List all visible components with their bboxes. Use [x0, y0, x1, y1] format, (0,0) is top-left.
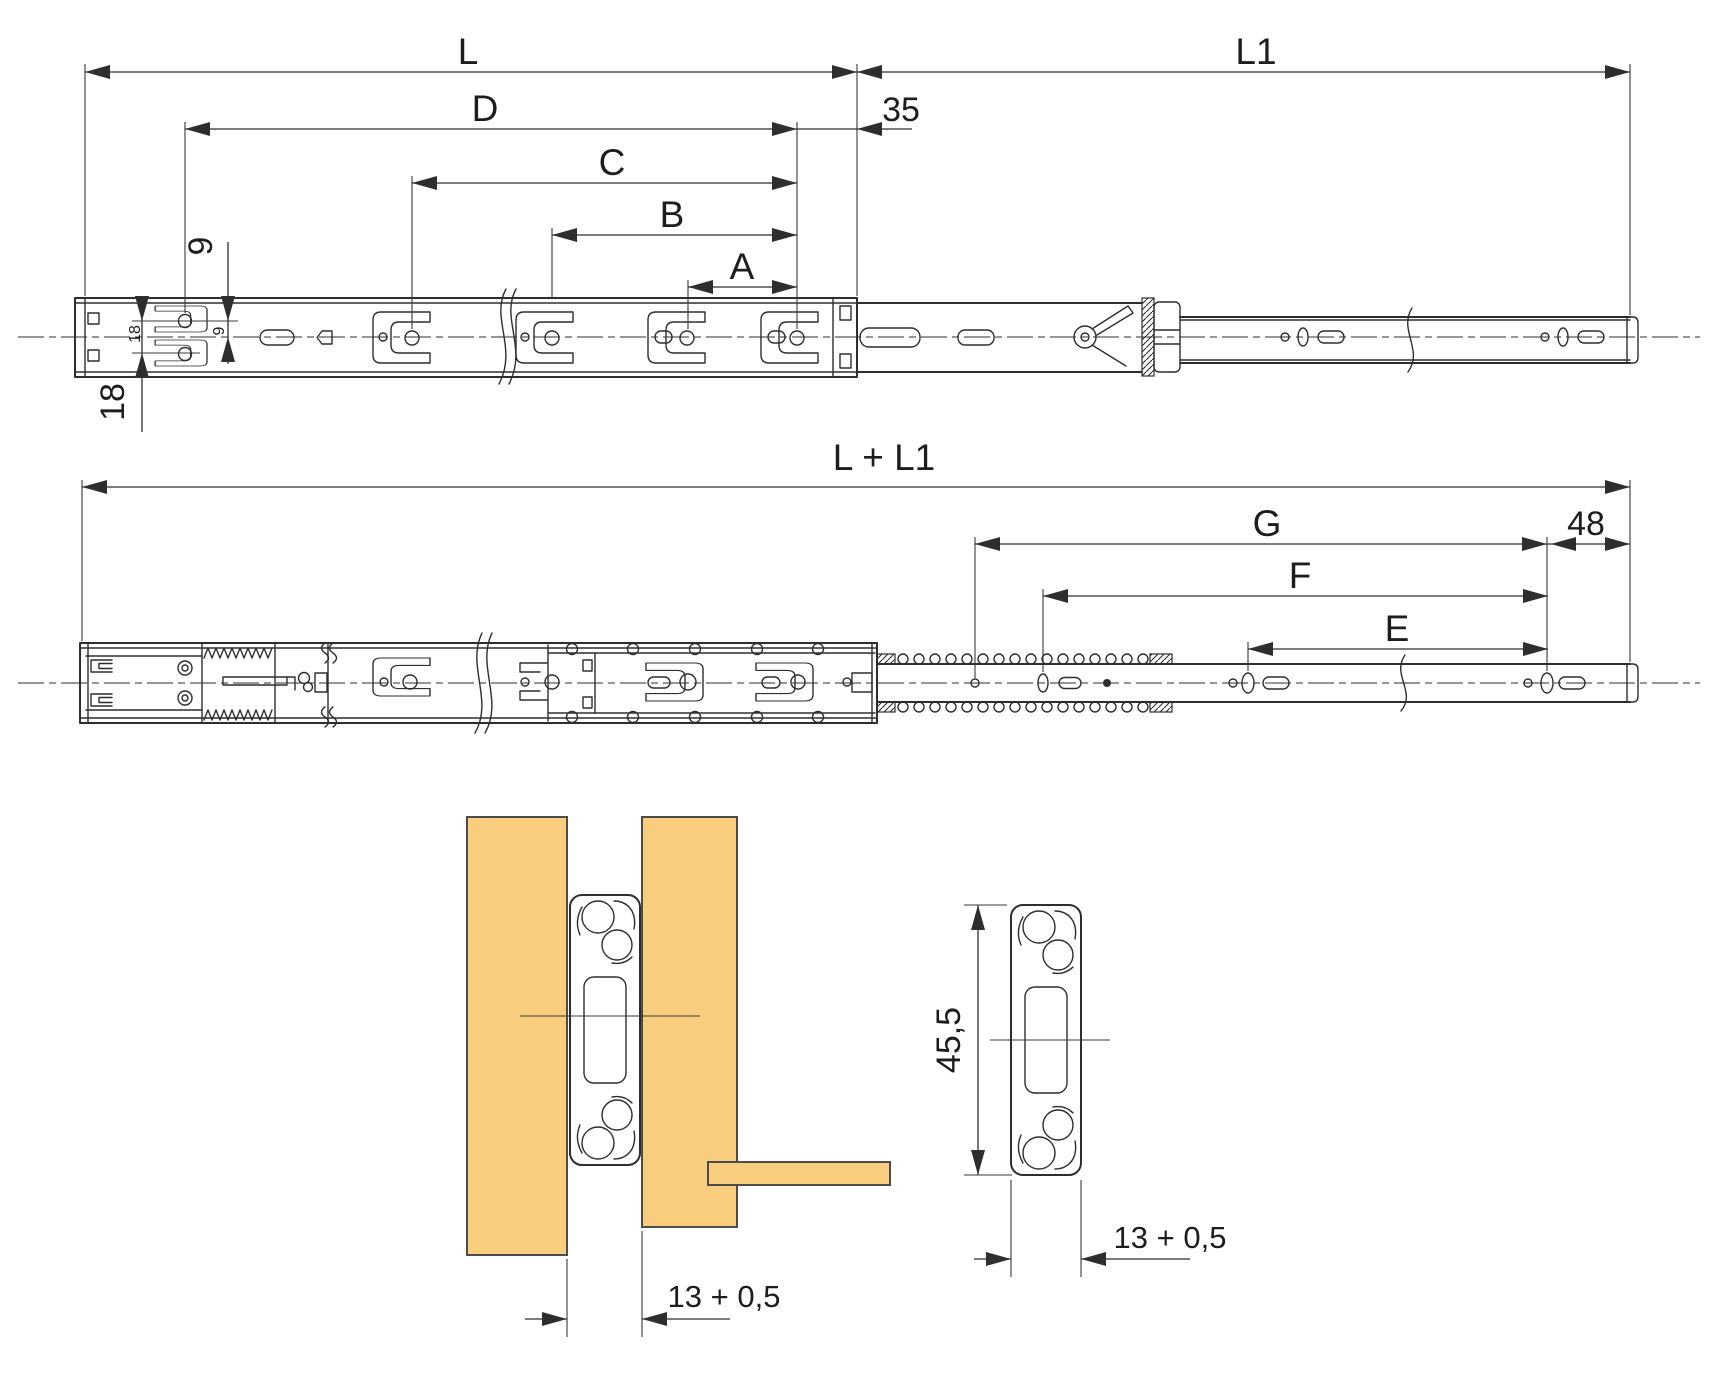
dim-label-C: C	[599, 142, 626, 183]
drawer-bottom-panel	[708, 1162, 890, 1185]
dim-label-18-small: 18	[127, 325, 144, 343]
dim-label-A: A	[730, 246, 755, 287]
technical-drawing-page: L L1 D 35 C	[0, 0, 1711, 1389]
drawer-slide-drawing: L L1 D 35 C	[0, 0, 1711, 1389]
dim-label-9-small: 9	[211, 326, 228, 335]
dim-label-B: B	[660, 194, 685, 235]
dim-label-total: L + L1	[833, 437, 936, 478]
dim-label-gap: 13 + 0,5	[668, 1279, 781, 1314]
dim-label-E: E	[1385, 608, 1410, 649]
dim-label-9: 9	[182, 237, 220, 256]
dim-label-455: 45,5	[930, 1007, 968, 1073]
dim-label-35: 35	[882, 91, 920, 129]
dim-label-L1: L1	[1235, 31, 1276, 72]
dim-label-G: G	[1253, 503, 1282, 544]
cabinet-panel	[467, 817, 567, 1255]
dim-label-D: D	[472, 88, 499, 129]
dim-label-gap-right: 13 + 0,5	[1114, 1220, 1227, 1255]
dim-label-48: 48	[1567, 505, 1605, 543]
dim-label-L: L	[458, 31, 479, 72]
latch-block	[1142, 298, 1154, 376]
dim-label-F: F	[1289, 555, 1312, 596]
dim-label-18: 18	[94, 383, 132, 421]
